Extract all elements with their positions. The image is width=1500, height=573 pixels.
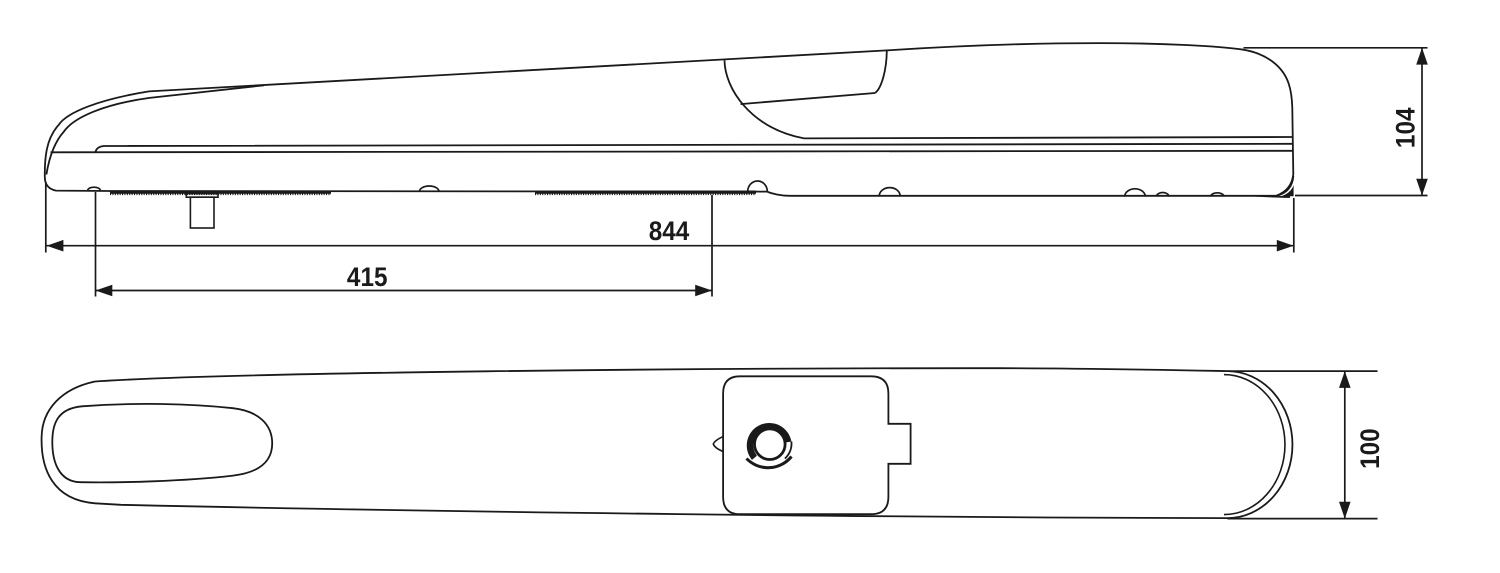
- svg-text:100: 100: [1356, 428, 1385, 469]
- svg-text:844: 844: [649, 217, 690, 246]
- svg-text:415: 415: [347, 263, 388, 292]
- svg-text:104: 104: [1391, 107, 1420, 148]
